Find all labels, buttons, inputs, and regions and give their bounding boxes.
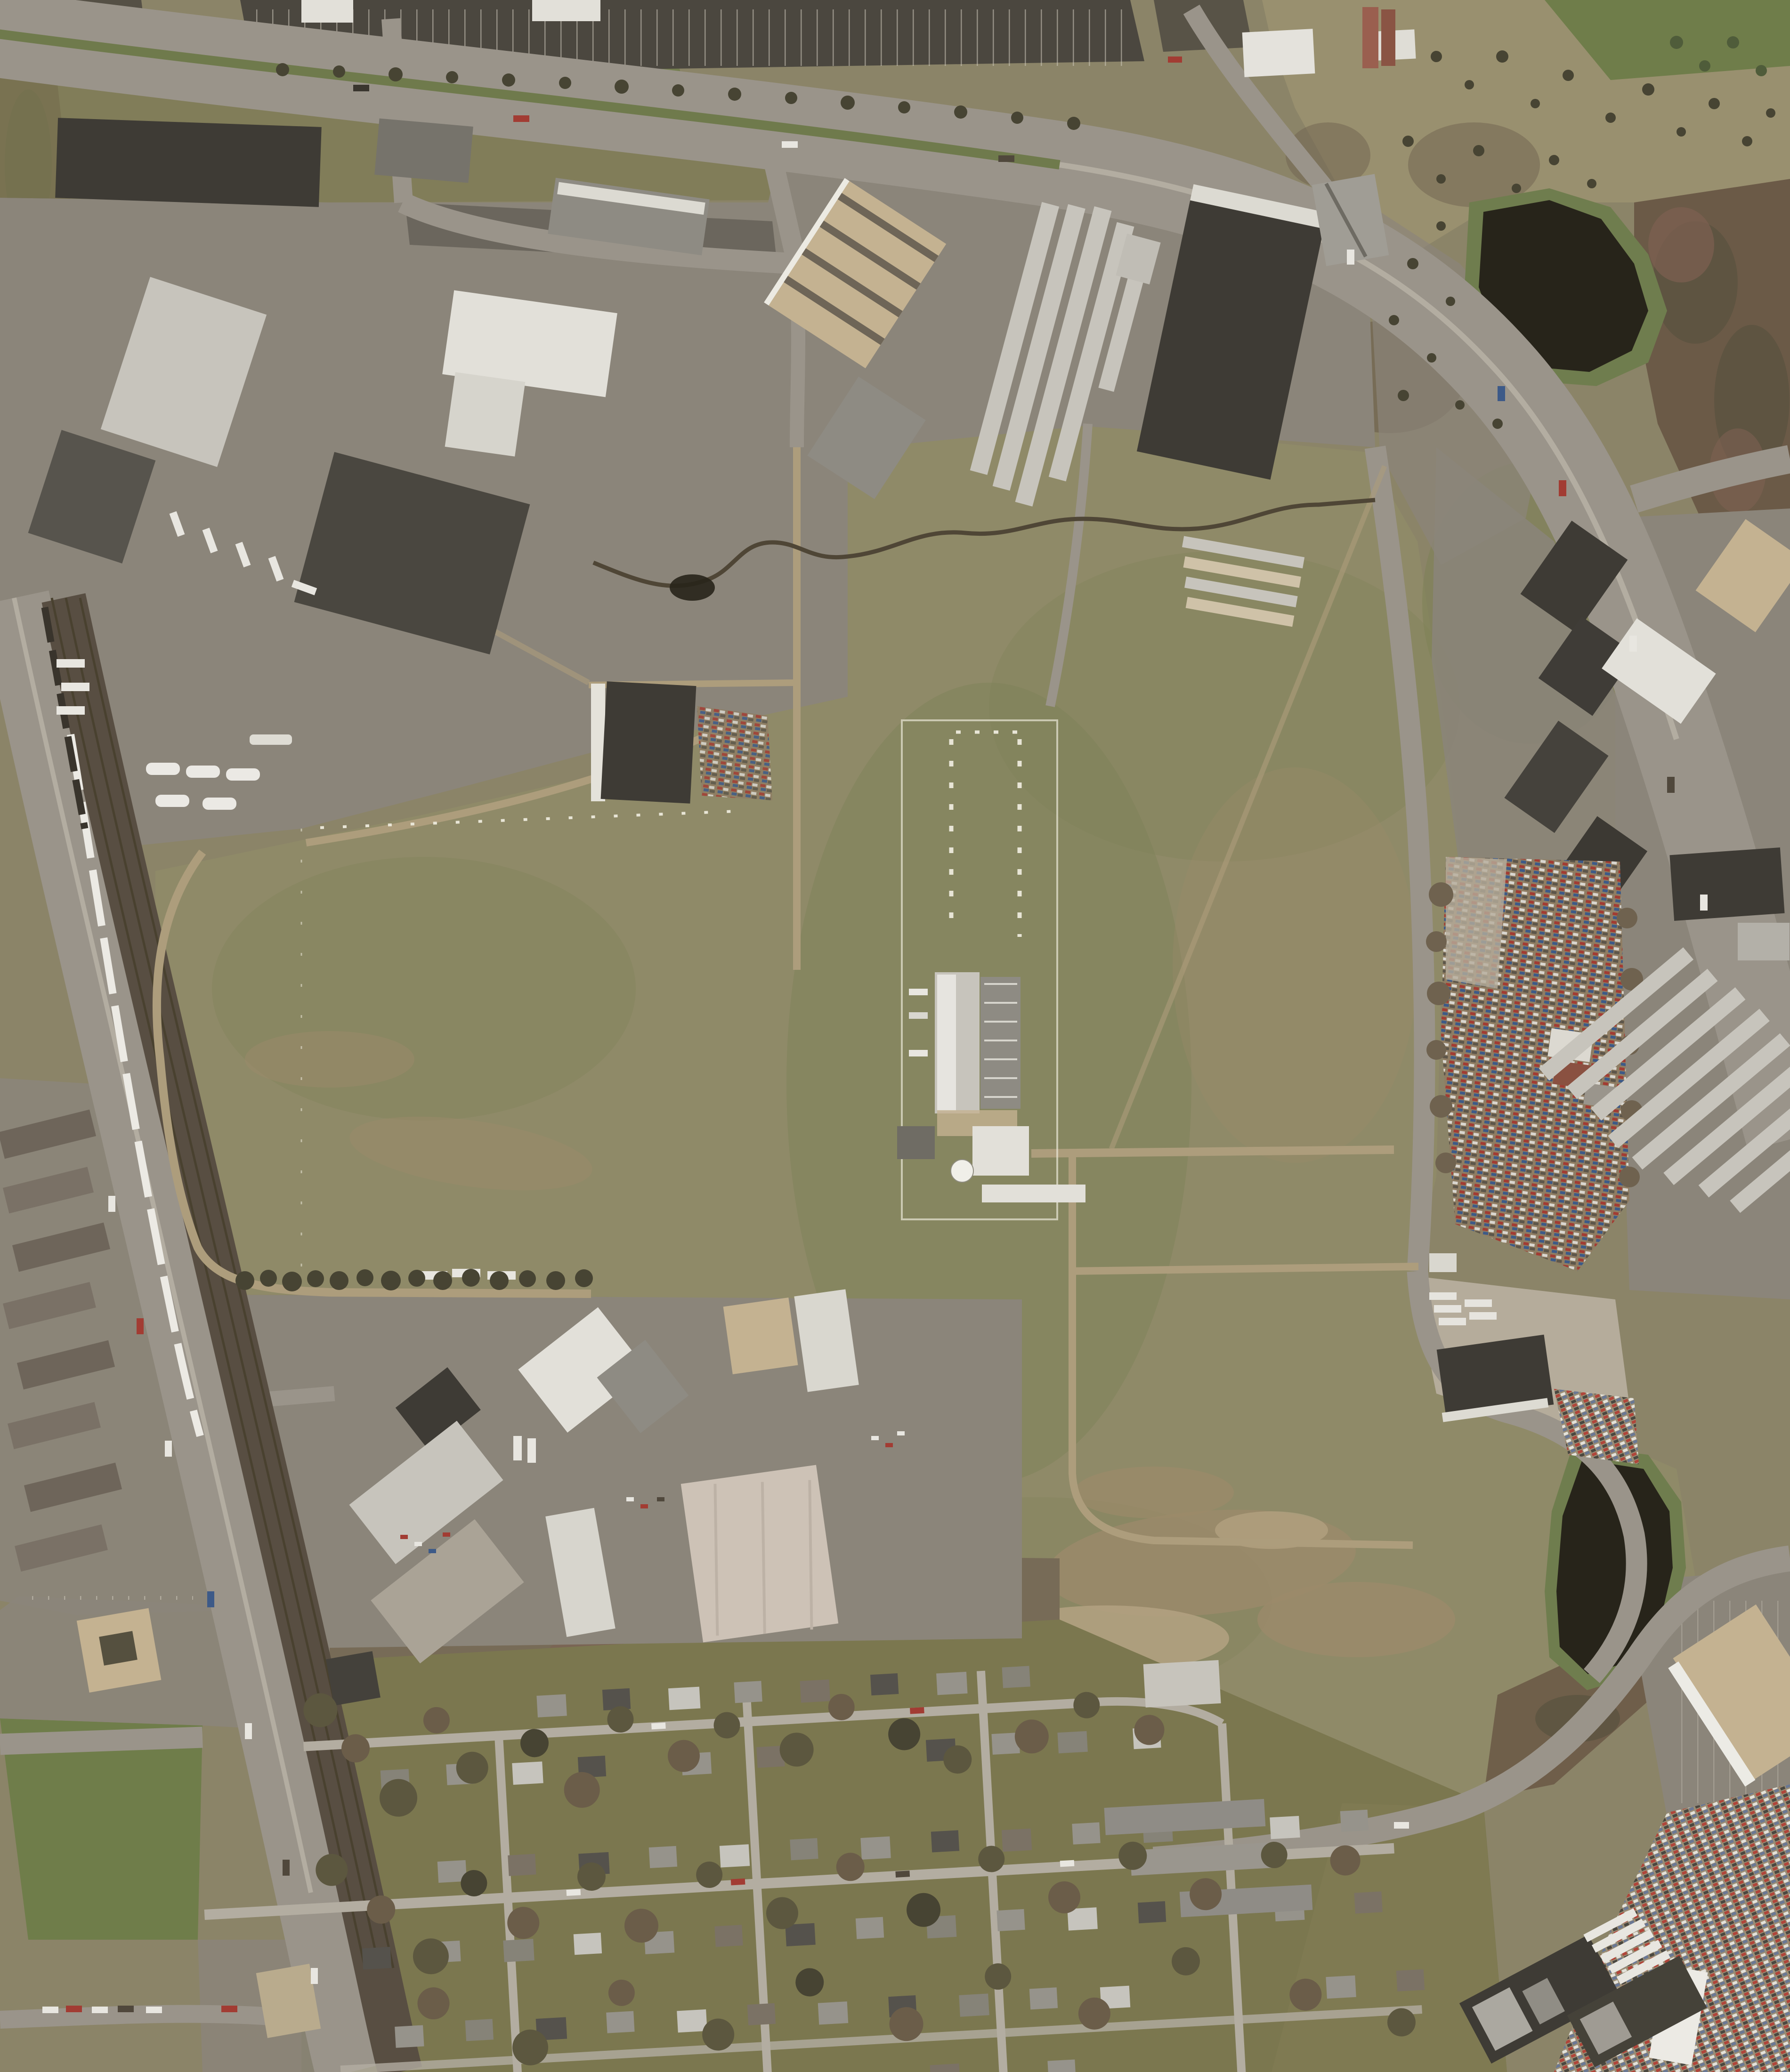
- long-building: [982, 1185, 1085, 1202]
- large-pink-warehouse: [681, 1465, 838, 1642]
- dark-warehouse: [1669, 847, 1784, 921]
- white-building: [1242, 29, 1315, 77]
- aerial-photo: [0, 0, 1790, 2072]
- support-building: [972, 1126, 1029, 1176]
- trailer: [1429, 1253, 1457, 1272]
- aerial-photo-canvas: [0, 0, 1790, 2072]
- red-containers: [1362, 7, 1378, 68]
- piping-yard: [980, 977, 1021, 1109]
- office-courtyard: [99, 1631, 138, 1666]
- salvage-yard: [697, 706, 772, 800]
- warehouse: [55, 118, 322, 207]
